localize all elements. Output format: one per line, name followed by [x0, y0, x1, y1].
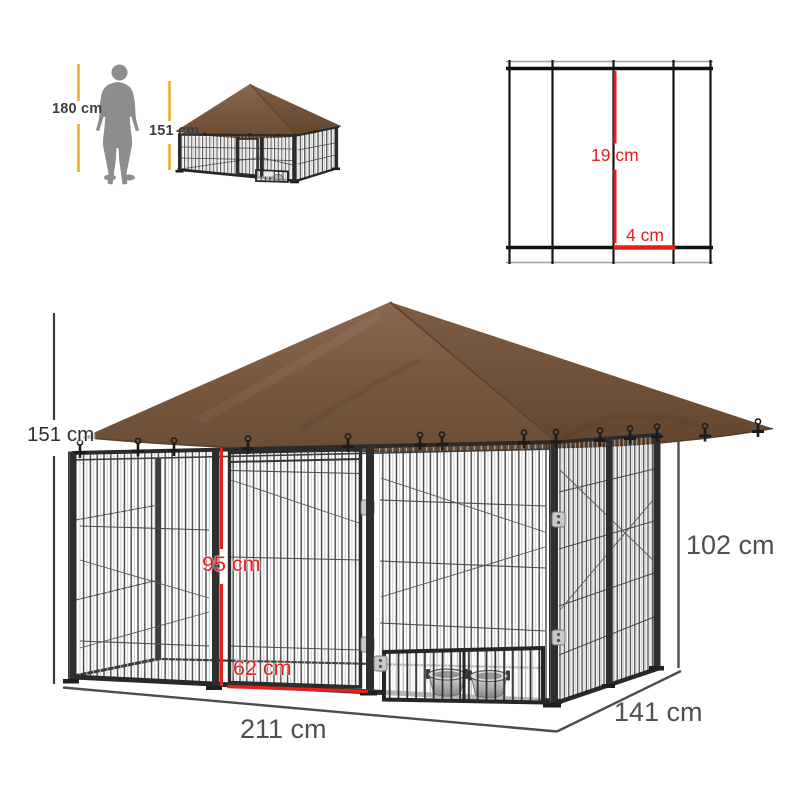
small-kennel-height-label: 151 cm — [149, 124, 199, 139]
product-dimension-diagram: 180 cm 151 cm 19 cm 4 cm 151 cm 95 cm 62… — [0, 0, 800, 800]
kennel-total-height-label: 151 cm — [27, 424, 94, 446]
mesh-horizontal-gap-label: 4 cm — [626, 226, 664, 244]
person-height-label: 180 cm — [52, 102, 102, 117]
kennel-width-label: 211 cm — [240, 715, 327, 743]
feeder-tray — [374, 648, 543, 703]
mesh-vertical-gap-label: 19 cm — [591, 146, 639, 164]
door-width-label: 62 cm — [233, 657, 292, 680]
small-kennel-illustration — [176, 84, 342, 183]
panel-hinge-icon — [552, 512, 565, 527]
main-kennel-illustration — [54, 302, 773, 732]
panel-hinge-icon — [552, 630, 565, 645]
kennel-depth-label: 141 cm — [614, 698, 703, 726]
panel-height-label: 102 cm — [686, 531, 775, 559]
feeder-hinge-icon — [374, 656, 387, 671]
small-kennel-label — [263, 172, 273, 177]
door-height-label: 95 cm — [202, 553, 261, 576]
diagram-canvas — [0, 0, 800, 800]
person-silhouette-icon — [96, 65, 139, 185]
side-face — [552, 434, 664, 703]
canopy — [83, 302, 773, 452]
